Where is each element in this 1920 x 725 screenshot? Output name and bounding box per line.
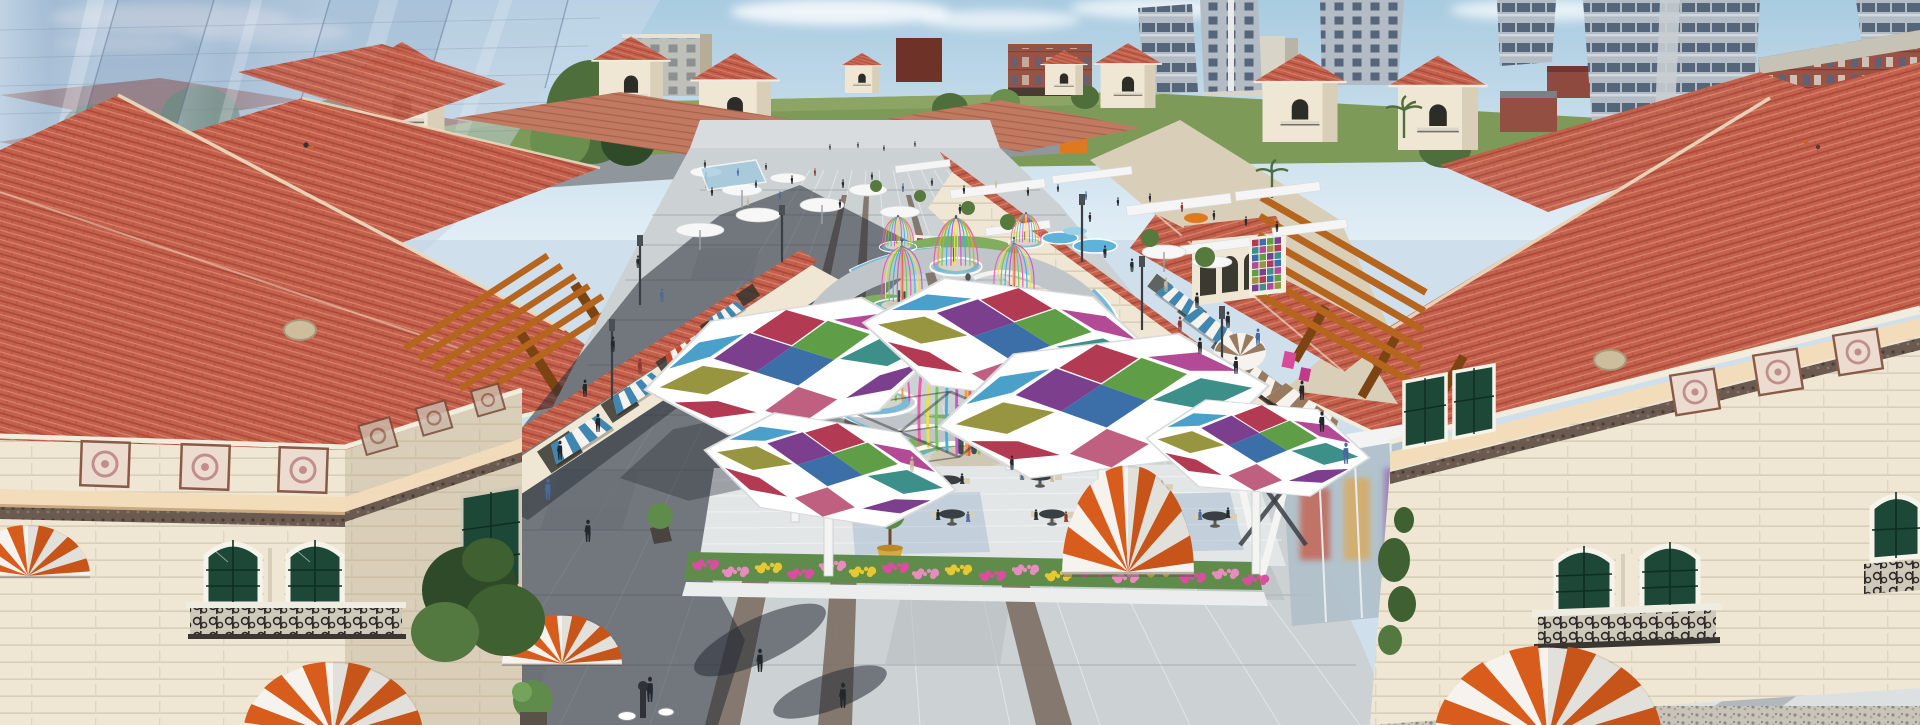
mosaic-tile (1275, 244, 1282, 251)
flower (994, 571, 998, 575)
mosaic-tile (1267, 238, 1274, 245)
arched-windows-left (206, 540, 342, 606)
flower (707, 560, 711, 564)
flower (1194, 573, 1198, 577)
flower (897, 563, 901, 567)
flower (1218, 568, 1224, 574)
flower (951, 564, 957, 570)
flower (1257, 575, 1261, 579)
person (1225, 312, 1230, 328)
flower (774, 563, 782, 571)
mosaic-tile (1252, 262, 1259, 269)
flower (1227, 569, 1231, 573)
flower (1248, 574, 1254, 580)
flower (698, 559, 704, 565)
flower (964, 565, 972, 573)
flower (819, 563, 823, 567)
flower (918, 568, 924, 574)
flower (838, 561, 846, 569)
mosaic-tile (1252, 254, 1259, 261)
flower (755, 565, 759, 569)
mosaic-tile (1252, 239, 1259, 246)
flower (849, 569, 853, 573)
dark-red-block (896, 38, 942, 82)
flower (901, 563, 909, 571)
flower (1212, 571, 1216, 575)
mosaic-tile (1275, 237, 1282, 244)
flower (864, 567, 868, 571)
plaza-rendering (0, 0, 1920, 725)
flower (979, 573, 983, 577)
iron-balcony-left (186, 602, 406, 639)
mosaic-mural-right (1249, 233, 1286, 296)
flower (1231, 569, 1239, 577)
mosaic-tile (1267, 275, 1274, 282)
flower (1012, 567, 1016, 571)
flower (1045, 573, 1049, 577)
flower (1198, 573, 1206, 581)
mosaic-tile (1260, 261, 1267, 268)
mosaic-tile (1260, 246, 1267, 253)
flower (931, 569, 939, 577)
mosaic-tile (1252, 284, 1259, 291)
flower (741, 567, 749, 575)
mosaic-tile (1267, 260, 1274, 267)
mosaic-tile (1260, 269, 1267, 276)
mosaic-tile (1267, 245, 1274, 252)
flower (834, 561, 838, 565)
mosaic-tile (1275, 274, 1282, 281)
mosaic-tile (1275, 282, 1282, 289)
flower (1018, 564, 1024, 570)
mosaic-tile (1275, 267, 1282, 274)
person (1130, 258, 1134, 272)
mosaic-tile (1267, 253, 1274, 260)
flower (793, 568, 799, 574)
flower (761, 562, 767, 568)
mosaic-tile (1260, 239, 1267, 246)
mosaic-tile (1252, 277, 1259, 284)
flower (711, 560, 719, 568)
flower (1242, 577, 1246, 581)
flower (770, 563, 774, 567)
flower (868, 567, 876, 575)
flower (855, 566, 861, 572)
flower (912, 571, 916, 575)
flower (722, 569, 726, 573)
flower (998, 571, 1006, 579)
mosaic-tile (1252, 247, 1259, 254)
flower (1027, 565, 1031, 569)
flower (802, 569, 806, 573)
flower (728, 566, 734, 572)
mosaic-tile (1252, 269, 1259, 276)
mosaic-tile (1260, 254, 1267, 261)
rendering-stage (0, 0, 1920, 725)
flower (945, 567, 949, 571)
flower (1261, 575, 1269, 583)
mosaic-tile (1260, 276, 1267, 283)
mosaic-tile (1267, 268, 1274, 275)
flower (806, 569, 814, 577)
flower (888, 562, 894, 568)
flower (787, 571, 791, 575)
mosaic-tile (1275, 259, 1282, 266)
mosaic-tile (1260, 284, 1267, 291)
flower (692, 562, 696, 566)
flower (985, 570, 991, 576)
mosaic-tile (1275, 252, 1282, 259)
flower (1051, 570, 1057, 576)
flower (737, 567, 741, 571)
flower (960, 565, 964, 569)
flower (927, 569, 931, 573)
mosaic-tile (1267, 283, 1274, 290)
flower (882, 565, 886, 569)
flower (1031, 565, 1039, 573)
